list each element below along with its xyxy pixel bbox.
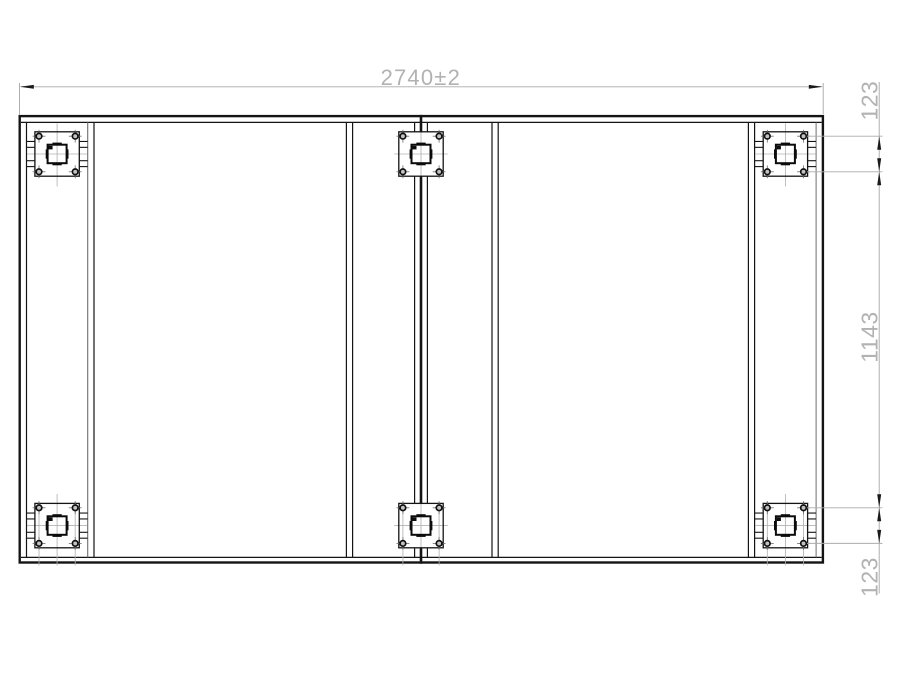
svg-text:123: 123 (857, 557, 883, 597)
svg-text:2740±2: 2740±2 (381, 65, 461, 90)
svg-text:123: 123 (857, 81, 883, 121)
svg-text:1143: 1143 (857, 311, 883, 362)
